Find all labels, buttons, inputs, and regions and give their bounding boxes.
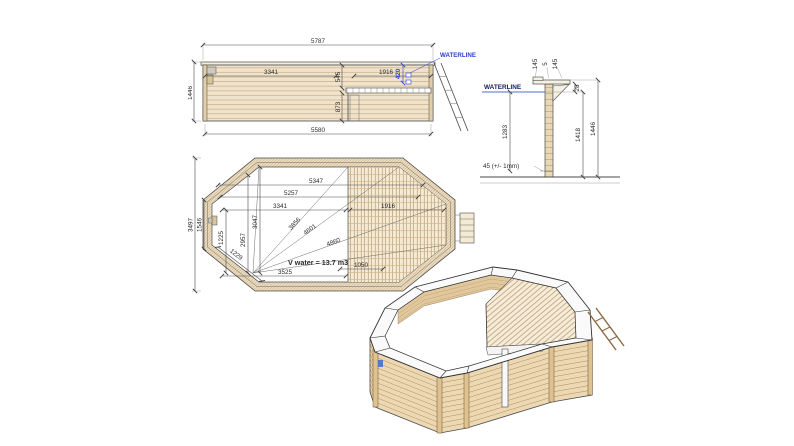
dim-left-section: 3341 bbox=[264, 69, 279, 76]
dim-inner-length-1: 5347 bbox=[309, 178, 324, 185]
dim-lower-inner-height: 873 bbox=[335, 101, 342, 112]
ladder-icon bbox=[434, 63, 468, 131]
volume-label: V water = 13.7 m3 bbox=[288, 258, 348, 267]
isometric-view bbox=[350, 252, 652, 446]
dim-inner-width-2: 3047 bbox=[252, 215, 259, 230]
elevation-view: 5787 5580 1446 3341 1916 545 873 420 bbox=[188, 36, 498, 144]
dim-height: 1446 bbox=[188, 86, 194, 101]
drawing-sheet: 5787 5580 1446 3341 1916 545 873 420 bbox=[0, 0, 794, 446]
dim-bottom-span: 3525 bbox=[278, 269, 293, 276]
skimmer-icon bbox=[212, 216, 217, 225]
dim-top-to-waterline: 28 bbox=[574, 84, 581, 92]
dim-inner-width-1: 2957 bbox=[240, 233, 247, 248]
skimmer-icon bbox=[207, 67, 216, 74]
skimmer-box-icon bbox=[209, 218, 213, 223]
waterline-label: WATERLINE bbox=[440, 52, 476, 59]
dim-overall-width: 3497 bbox=[188, 218, 195, 233]
cap-edge-piece bbox=[533, 77, 543, 81]
left-post bbox=[203, 65, 207, 121]
dim-deck-span: 1916 bbox=[381, 203, 396, 210]
dim-diag-2: 4601 bbox=[302, 223, 318, 237]
dim-right-section: 1916 bbox=[379, 69, 394, 76]
dim-total-height: 1446 bbox=[590, 122, 597, 137]
return-jet-icon bbox=[406, 73, 411, 77]
dim-overall-width: 5787 bbox=[311, 38, 326, 45]
wall-post-section bbox=[545, 84, 553, 177]
dim-diag-3: 4860 bbox=[326, 237, 342, 249]
dim-waterline-depth: 420 bbox=[395, 68, 402, 79]
dim-wall-height: 1418 bbox=[575, 128, 582, 143]
skimmer-body-icon bbox=[207, 75, 213, 84]
section-detail-view: 145 5 145 WATERLINE 28 1283 1418 1446 45… bbox=[480, 40, 620, 192]
deck-platform-section bbox=[346, 88, 431, 93]
ladder-3d-icon bbox=[588, 308, 624, 350]
inlet-icon bbox=[406, 80, 411, 84]
dim-side-width: 1546 bbox=[197, 218, 204, 233]
skimmer-tag-icon bbox=[378, 360, 383, 367]
dim-cap-back: 145 bbox=[552, 58, 559, 69]
dim-inner-length-2: 5257 bbox=[284, 190, 299, 197]
ladder-plan-icon bbox=[455, 213, 474, 243]
dim-upper-inner-height: 545 bbox=[335, 71, 342, 82]
waterline-label: WATERLINE bbox=[484, 84, 522, 91]
dim-cap-gap: 5 bbox=[542, 62, 549, 66]
dim-diag-1: 3856 bbox=[288, 216, 303, 231]
dim-base-width: 5580 bbox=[311, 127, 326, 134]
corner-bracket bbox=[553, 85, 569, 102]
dim-cap-front: 145 bbox=[532, 58, 539, 69]
dim-left-span: 3341 bbox=[273, 203, 288, 210]
dim-water-depth: 1283 bbox=[502, 125, 509, 140]
dim-left-offset: 1225 bbox=[218, 231, 225, 246]
